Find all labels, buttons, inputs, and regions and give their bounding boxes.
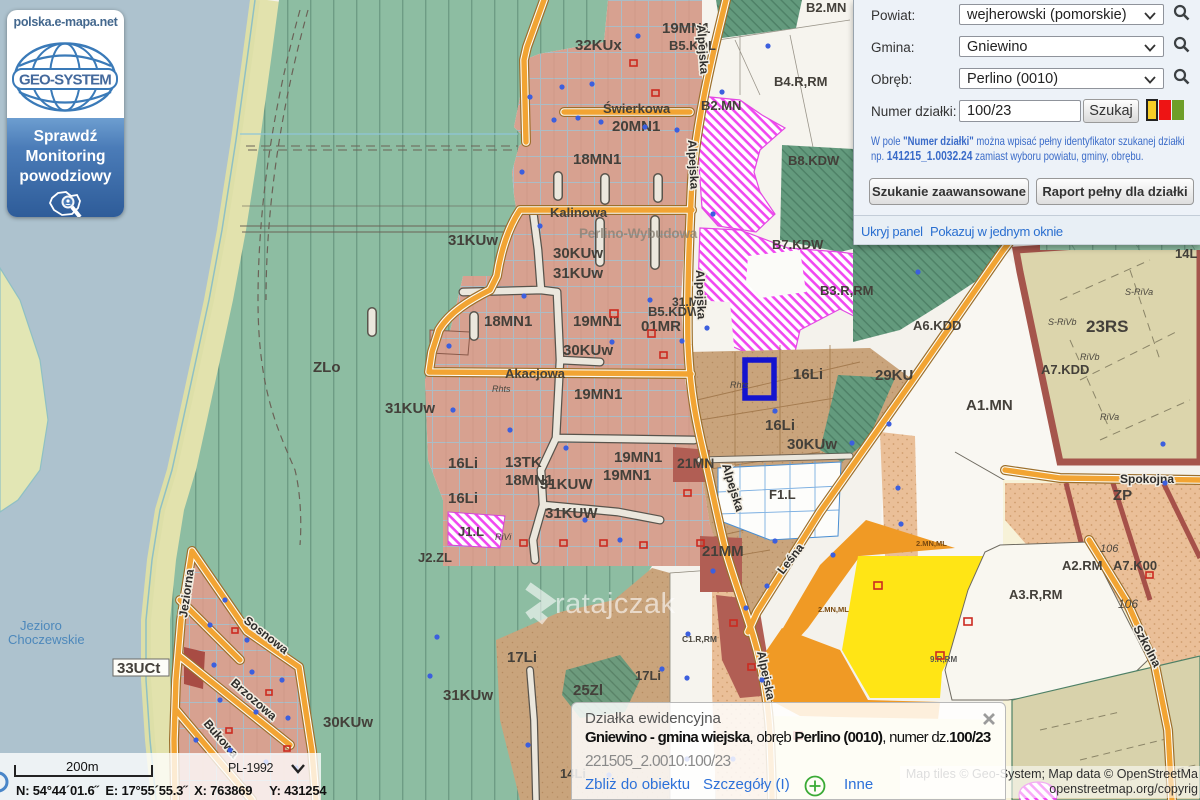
svg-text:32KUx: 32KUx	[575, 37, 622, 54]
svg-text:A2.RM: A2.RM	[1062, 558, 1102, 573]
svg-text:18MN1: 18MN1	[484, 313, 532, 330]
svg-text:31KUw: 31KUw	[553, 265, 603, 282]
svg-text:F1.L: F1.L	[769, 487, 796, 502]
svg-text:RiVb: RiVb	[1080, 352, 1100, 362]
svg-text:A1.MN: A1.MN	[966, 397, 1013, 414]
svg-text:16Li: 16Li	[765, 417, 795, 434]
svg-text:16Li: 16Li	[448, 455, 478, 472]
svg-text:25Zl: 25Zl	[573, 682, 603, 699]
svg-text:17Li: 17Li	[635, 668, 661, 683]
svg-text:Kalinowa: Kalinowa	[550, 205, 608, 220]
svg-text:30KUw: 30KUw	[323, 714, 373, 731]
svg-text:19MN1: 19MN1	[573, 313, 621, 330]
svg-text:B3.R,RM: B3.R,RM	[820, 283, 873, 298]
svg-text:Akacjowa: Akacjowa	[505, 366, 566, 381]
svg-text:B8.KDW: B8.KDW	[788, 153, 840, 168]
svg-text:106: 106	[1118, 597, 1138, 611]
svg-text:GEO-SYSTEM: GEO-SYSTEM	[19, 72, 111, 89]
svg-text:19MN1: 19MN1	[603, 467, 651, 484]
svg-text:21MN: 21MN	[677, 455, 714, 471]
svg-text:J1.L: J1.L	[458, 524, 484, 539]
svg-text:ZLo: ZLo	[313, 359, 341, 376]
svg-text:Alpejska: Alpejska	[685, 139, 702, 189]
svg-text:S-RiVb: S-RiVb	[1048, 317, 1077, 327]
svg-text:19MN1: 19MN1	[574, 386, 622, 403]
svg-text:13TK: 13TK	[505, 454, 542, 471]
svg-text:Świerkowa: Świerkowa	[603, 101, 671, 116]
svg-text:31KUW: 31KUW	[540, 476, 593, 493]
svg-text:2.MN,ML: 2.MN,ML	[916, 539, 947, 548]
svg-text:B4.R,RM: B4.R,RM	[774, 74, 827, 89]
svg-text:ZP: ZP	[1113, 487, 1132, 504]
svg-text:33UCt: 33UCt	[117, 660, 160, 677]
svg-text:J2.ZL: J2.ZL	[418, 550, 452, 565]
svg-text:17Li: 17Li	[507, 649, 537, 666]
svg-text:21MM: 21MM	[702, 543, 744, 560]
svg-text:16Li: 16Li	[448, 490, 478, 507]
svg-text:31KUW: 31KUW	[545, 505, 598, 522]
svg-text:Perlino-Wybudowa: Perlino-Wybudowa	[579, 226, 698, 241]
svg-text:B2.MN: B2.MN	[806, 0, 846, 15]
svg-text:29KU: 29KU	[875, 367, 913, 384]
svg-text:19MN1: 19MN1	[614, 449, 662, 466]
svg-text:20MN1: 20MN1	[612, 118, 660, 135]
svg-text:31KUw: 31KUw	[443, 687, 493, 704]
svg-text:B2.MN: B2.MN	[701, 98, 741, 113]
svg-text:18MN1: 18MN1	[573, 151, 621, 168]
svg-text:A6.KDD: A6.KDD	[913, 318, 961, 333]
svg-text:16Li: 16Li	[793, 366, 823, 383]
svg-text:01MR: 01MR	[641, 318, 681, 335]
svg-text:31KUw: 31KUw	[448, 232, 498, 249]
svg-text:Rhts: Rhts	[730, 380, 749, 390]
svg-text:31KUw: 31KUw	[385, 400, 435, 417]
svg-text:2.MN,ML: 2.MN,ML	[818, 605, 849, 614]
svg-text:B7.KDW: B7.KDW	[772, 237, 824, 252]
svg-text:Jezioro: Jezioro	[20, 618, 62, 633]
svg-text:Choczewskie: Choczewskie	[8, 632, 85, 647]
svg-text:A7.KDD: A7.KDD	[1041, 362, 1089, 377]
svg-text:106: 106	[1100, 543, 1119, 555]
svg-text:30KUw: 30KUw	[787, 436, 837, 453]
svg-text:30KUw: 30KUw	[563, 342, 613, 359]
svg-text:S-RiVa: S-RiVa	[1125, 287, 1153, 297]
svg-text:23RS: 23RS	[1086, 317, 1129, 336]
svg-text:B5.KDW: B5.KDW	[648, 304, 700, 319]
svg-text:14L: 14L	[1175, 246, 1197, 261]
svg-text:Rhts: Rhts	[492, 384, 511, 394]
svg-text:30KUw: 30KUw	[553, 245, 603, 262]
svg-text:RiVa: RiVa	[1100, 412, 1119, 422]
svg-text:A7.K00: A7.K00	[1113, 558, 1157, 573]
svg-text:Alpejska: Alpejska	[693, 270, 709, 320]
svg-text:RiVi: RiVi	[495, 532, 512, 542]
svg-text:A3.R,RM: A3.R,RM	[1009, 587, 1062, 602]
